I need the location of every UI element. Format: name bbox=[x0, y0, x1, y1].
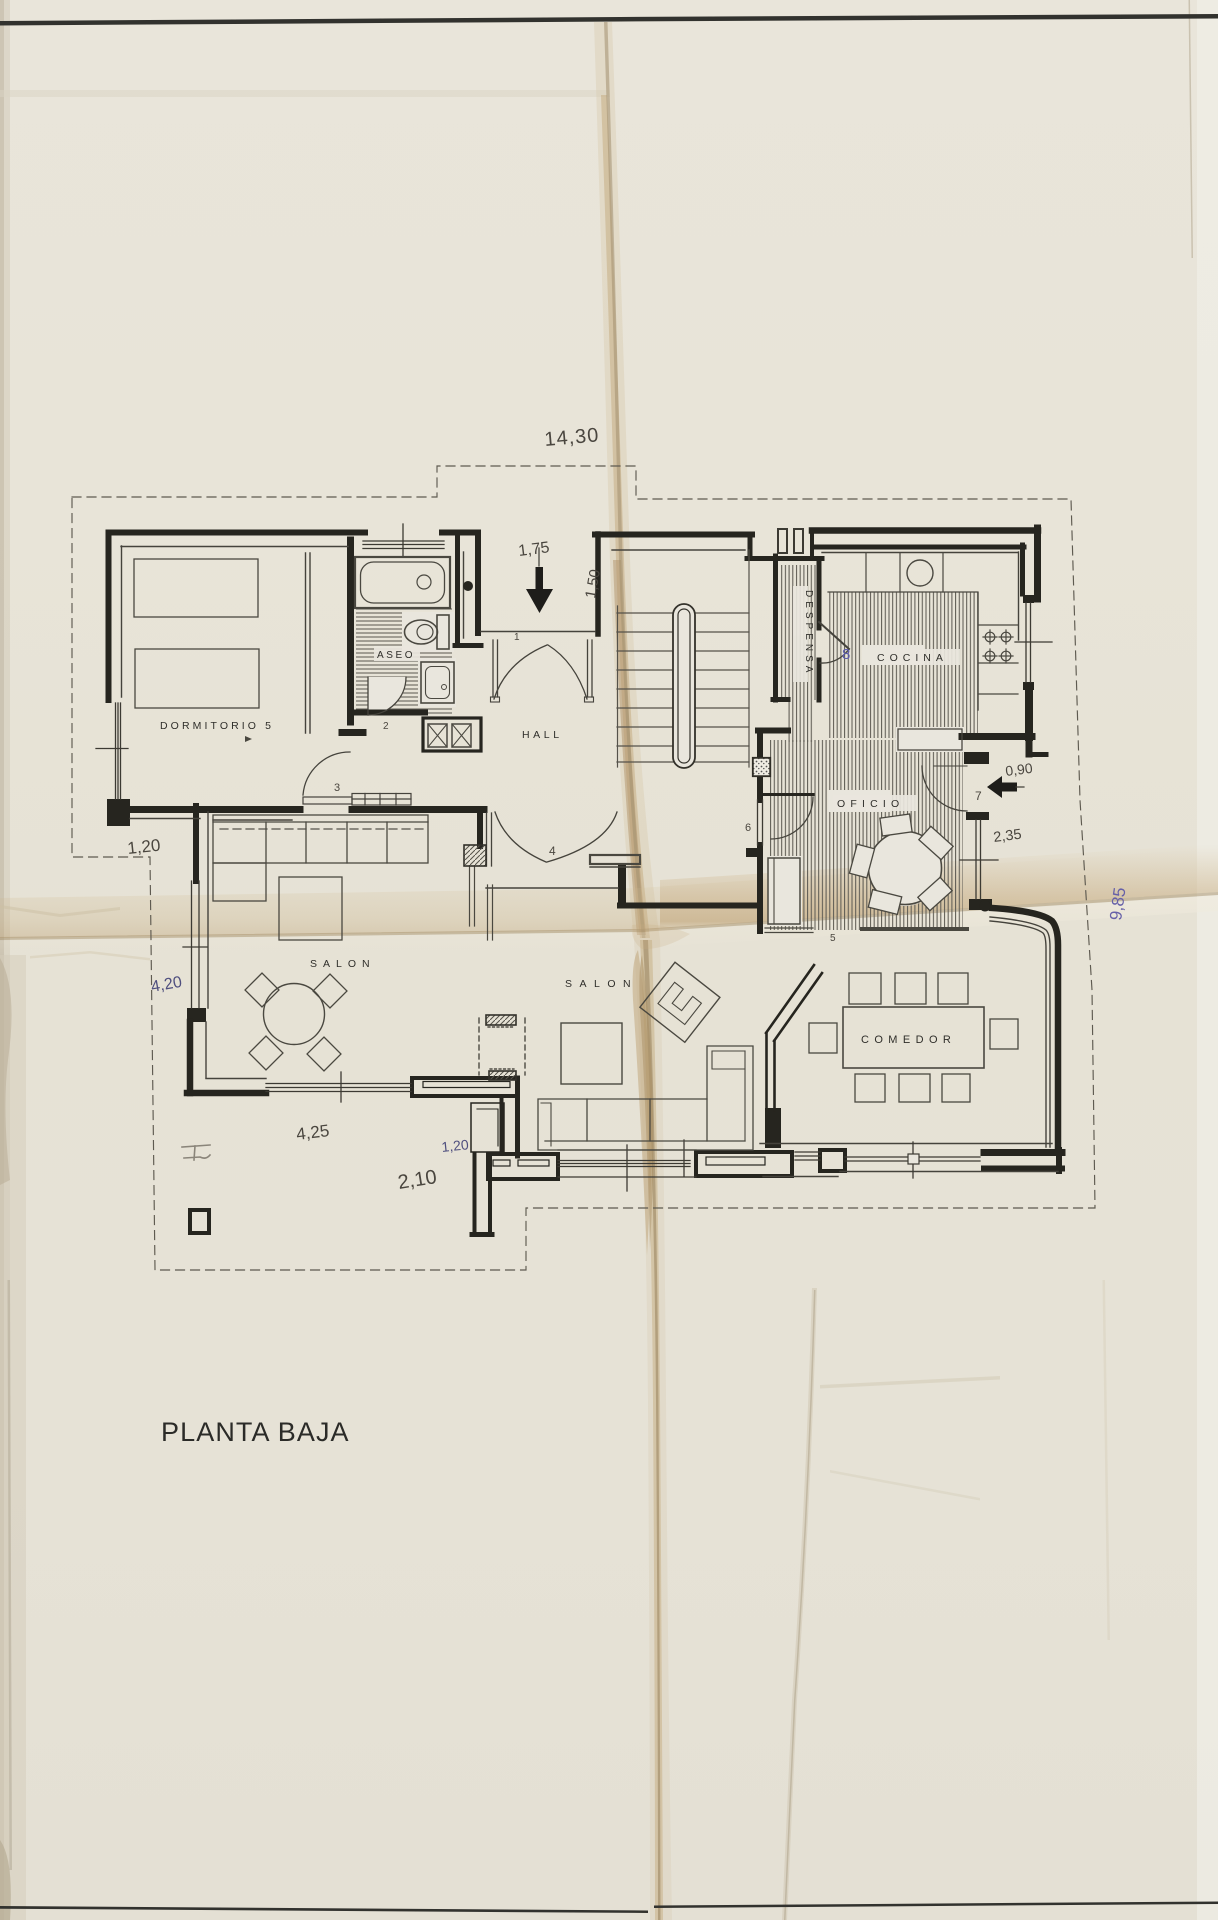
svg-text:2,35: 2,35 bbox=[993, 827, 1023, 846]
svg-text:7: 7 bbox=[975, 789, 982, 803]
svg-text:4: 4 bbox=[549, 844, 556, 858]
svg-text:2: 2 bbox=[383, 721, 389, 732]
svg-text:PLANTA BAJA: PLANTA BAJA bbox=[161, 1417, 350, 1447]
svg-text:0,90: 0,90 bbox=[1004, 760, 1033, 779]
svg-text:OFICIO: OFICIO bbox=[837, 798, 904, 810]
svg-text:DORMITORIO 5: DORMITORIO 5 bbox=[160, 720, 274, 732]
svg-text:SALON: SALON bbox=[310, 958, 376, 970]
svg-text:HALL: HALL bbox=[522, 729, 563, 741]
svg-text:COMEDOR: COMEDOR bbox=[861, 1034, 956, 1046]
svg-text:8: 8 bbox=[842, 646, 850, 663]
svg-text:ASEO: ASEO bbox=[377, 650, 415, 661]
svg-text:SALON: SALON bbox=[565, 978, 638, 990]
svg-text:1,20: 1,20 bbox=[126, 836, 161, 858]
svg-text:DESPENSA: DESPENSA bbox=[803, 590, 814, 676]
svg-text:3: 3 bbox=[334, 782, 340, 794]
svg-text:COCINA: COCINA bbox=[877, 652, 948, 664]
svg-text:6: 6 bbox=[745, 822, 751, 834]
svg-text:4,25: 4,25 bbox=[295, 1121, 330, 1144]
svg-text:5: 5 bbox=[830, 933, 836, 944]
svg-text:1: 1 bbox=[514, 632, 520, 643]
svg-text:1,20: 1,20 bbox=[441, 1136, 470, 1155]
